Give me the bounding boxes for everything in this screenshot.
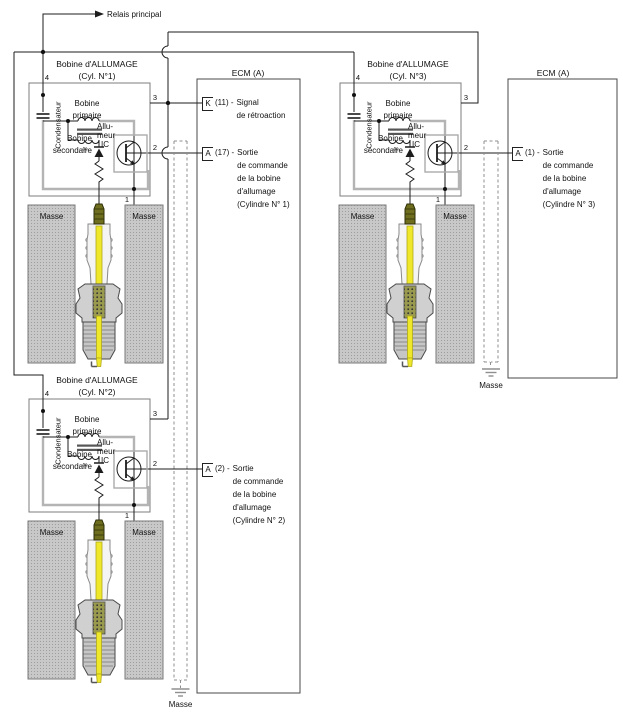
coil3-title-2: (Cyl. N°3): [390, 71, 427, 81]
coil1-title-2: (Cyl. N°1): [79, 71, 116, 81]
ecm-right-box: [508, 79, 617, 378]
terminal-description: Sortie de commande de la bobine d'alluma…: [543, 146, 596, 211]
ecm-terminal-a2: A (2) - Sortie de commande de la bobine …: [202, 462, 285, 527]
ecm-left-title: ECM (A): [232, 68, 265, 78]
coil3-title-1: Bobine d'ALLUMAGE: [367, 59, 449, 69]
terminal-line: de rétroaction: [237, 109, 286, 122]
ecm-right-title: ECM (A): [537, 68, 570, 78]
terminal-line: de la bobine: [233, 488, 286, 501]
diagram-canvas: 4 3 2 1: [0, 0, 623, 720]
coil-unit-cyl3: [339, 73, 474, 367]
pin-letter-box: A: [202, 463, 213, 477]
pin-suffix: (2) -: [215, 462, 230, 475]
relay-label: Relais principal: [107, 10, 161, 19]
junction-dot: [166, 101, 170, 105]
wiring-diagram: 4 3 2 1: [0, 0, 623, 720]
arrow-icon: [95, 11, 104, 18]
terminal-line: de commande: [543, 159, 596, 172]
ecm-terminal-k11: K (11) - Signal de rétroaction: [202, 96, 285, 122]
terminal-description: Sortie de commande de la bobine d'alluma…: [233, 462, 286, 527]
coil1-title-1: Bobine d'ALLUMAGE: [56, 59, 138, 69]
terminal-line: de la bobine: [543, 172, 596, 185]
terminal-line: de commande: [233, 475, 286, 488]
terminal-line: Sortie: [233, 462, 286, 475]
terminal-line: (Cylindre N° 1): [237, 198, 290, 211]
ground-label-right: Masse: [479, 381, 503, 390]
terminal-line: (Cylindre N° 3): [543, 198, 596, 211]
pin-suffix: (17) -: [215, 146, 234, 159]
coil2-title-2: (Cyl. N°2): [79, 387, 116, 397]
terminal-line: Sortie: [543, 146, 596, 159]
coil-unit-cyl1: [28, 73, 163, 367]
terminal-line: Sortie: [237, 146, 290, 159]
pin-letter-box: A: [202, 147, 213, 161]
terminal-line: Signal: [237, 96, 286, 109]
ground-symbol-left: [172, 689, 190, 696]
terminal-line: d'allumage: [543, 185, 596, 198]
pin-letter-box: A: [512, 147, 523, 161]
terminal-description: Sortie de commande de la bobine d'alluma…: [237, 146, 290, 211]
pin-suffix: (1) -: [525, 146, 540, 159]
ground-label-left: Masse: [169, 700, 193, 709]
terminal-description: Signal de rétroaction: [237, 96, 286, 122]
terminal-line: de commande: [237, 159, 290, 172]
terminal-line: d'allumage: [237, 185, 290, 198]
terminal-line: d'allumage: [233, 501, 286, 514]
coil2-title-1: Bobine d'ALLUMAGE: [56, 375, 138, 385]
shield-dashed-left: [174, 141, 187, 688]
terminal-line: de la bobine: [237, 172, 290, 185]
pin-letter-box: K: [202, 97, 213, 111]
ecm-terminal-a17: A (17) - Sortie de commande de la bobine…: [202, 146, 290, 211]
terminal-line: (Cylindre N° 2): [233, 514, 286, 527]
coil-unit-cyl2: [28, 389, 163, 683]
ground-symbol-right: [482, 369, 500, 376]
pin-suffix: (11) -: [215, 96, 234, 109]
shield-dashed-right: [484, 141, 498, 367]
junction-dot: [41, 50, 45, 54]
ecm-terminal-a1: A (1) - Sortie de commande de la bobine …: [512, 146, 595, 211]
